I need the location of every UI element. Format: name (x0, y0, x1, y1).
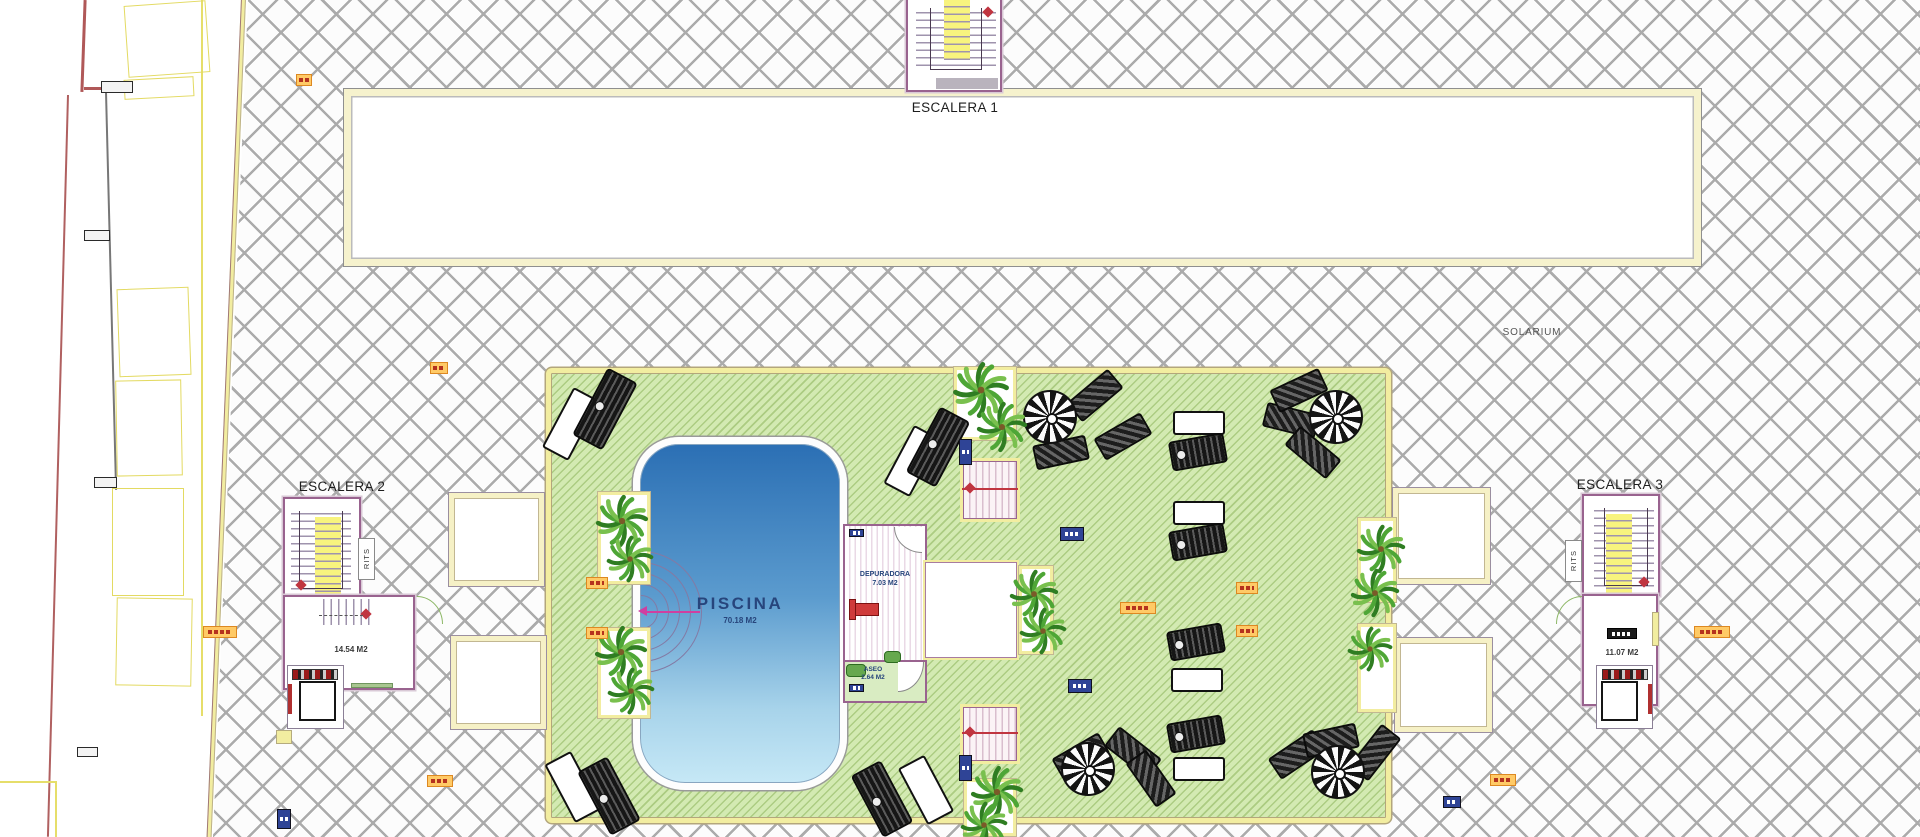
dimension-tag (203, 626, 237, 638)
parasol-icon (1309, 390, 1363, 444)
floor-plan-canvas: ESCALERA 1 SOLARIUM PISCINA 70.18 M2 DEP… (0, 0, 1920, 837)
black-lounger-icon (1166, 714, 1226, 753)
marker-tag (959, 755, 972, 781)
deck-skylight (450, 635, 547, 730)
white-lounger-icon (1173, 757, 1225, 781)
marker-tag (277, 809, 291, 829)
white-lounger-icon (1173, 501, 1225, 525)
sun-lounger-icon (1093, 412, 1152, 461)
deck-skylight (448, 492, 545, 587)
parasol-icon (1023, 390, 1077, 444)
marker-tag (1068, 679, 1092, 693)
dimension-tag (1120, 602, 1156, 614)
palm-tree-icon (606, 666, 656, 716)
parasol-icon (1311, 745, 1365, 799)
palm-tree-icon (1349, 567, 1401, 619)
palm-tree-icon (975, 400, 1029, 454)
parasol-icon (1061, 742, 1115, 796)
dimension-tag (427, 775, 453, 787)
dimension-tag (1490, 774, 1516, 786)
parking-bay-outline (112, 488, 184, 596)
sun-lounger-icon (1125, 749, 1176, 808)
marker-tag (1060, 527, 1084, 541)
dimension-tag (586, 577, 608, 589)
dimension-tag (1236, 625, 1258, 637)
dimension-tag (586, 627, 608, 639)
boundary-marker (94, 477, 117, 488)
boundary-marker (77, 747, 98, 757)
white-lounger-icon (1173, 411, 1225, 435)
black-lounger-icon (1168, 432, 1228, 471)
parking-bay-outline (115, 379, 183, 476)
parking-bay-outline (115, 597, 193, 686)
parking-bay-outline (116, 287, 191, 377)
palm-tree-icon (959, 800, 1009, 837)
white-lounger-icon (1171, 668, 1223, 692)
marker-tag (849, 529, 864, 537)
dimension-tag (1694, 626, 1730, 638)
parking-bay-outline (124, 76, 195, 100)
marker-tag (1443, 796, 1461, 808)
furniture-layer (0, 0, 1920, 837)
marker-tag (959, 439, 972, 465)
marker-tag (849, 684, 864, 692)
dimension-tag (296, 74, 312, 86)
black-lounger-icon (1168, 522, 1228, 561)
black-lounger-icon (1166, 622, 1226, 661)
parking-bay-outline (124, 0, 211, 78)
palm-tree-icon (1346, 625, 1394, 673)
dimension-tag (1236, 582, 1258, 594)
palm-tree-icon (1018, 606, 1068, 656)
boundary-marker (84, 230, 110, 241)
dimension-tag (430, 362, 448, 374)
palm-tree-icon (605, 534, 655, 584)
boundary-marker (101, 81, 133, 93)
deck-skylight (1394, 637, 1493, 733)
